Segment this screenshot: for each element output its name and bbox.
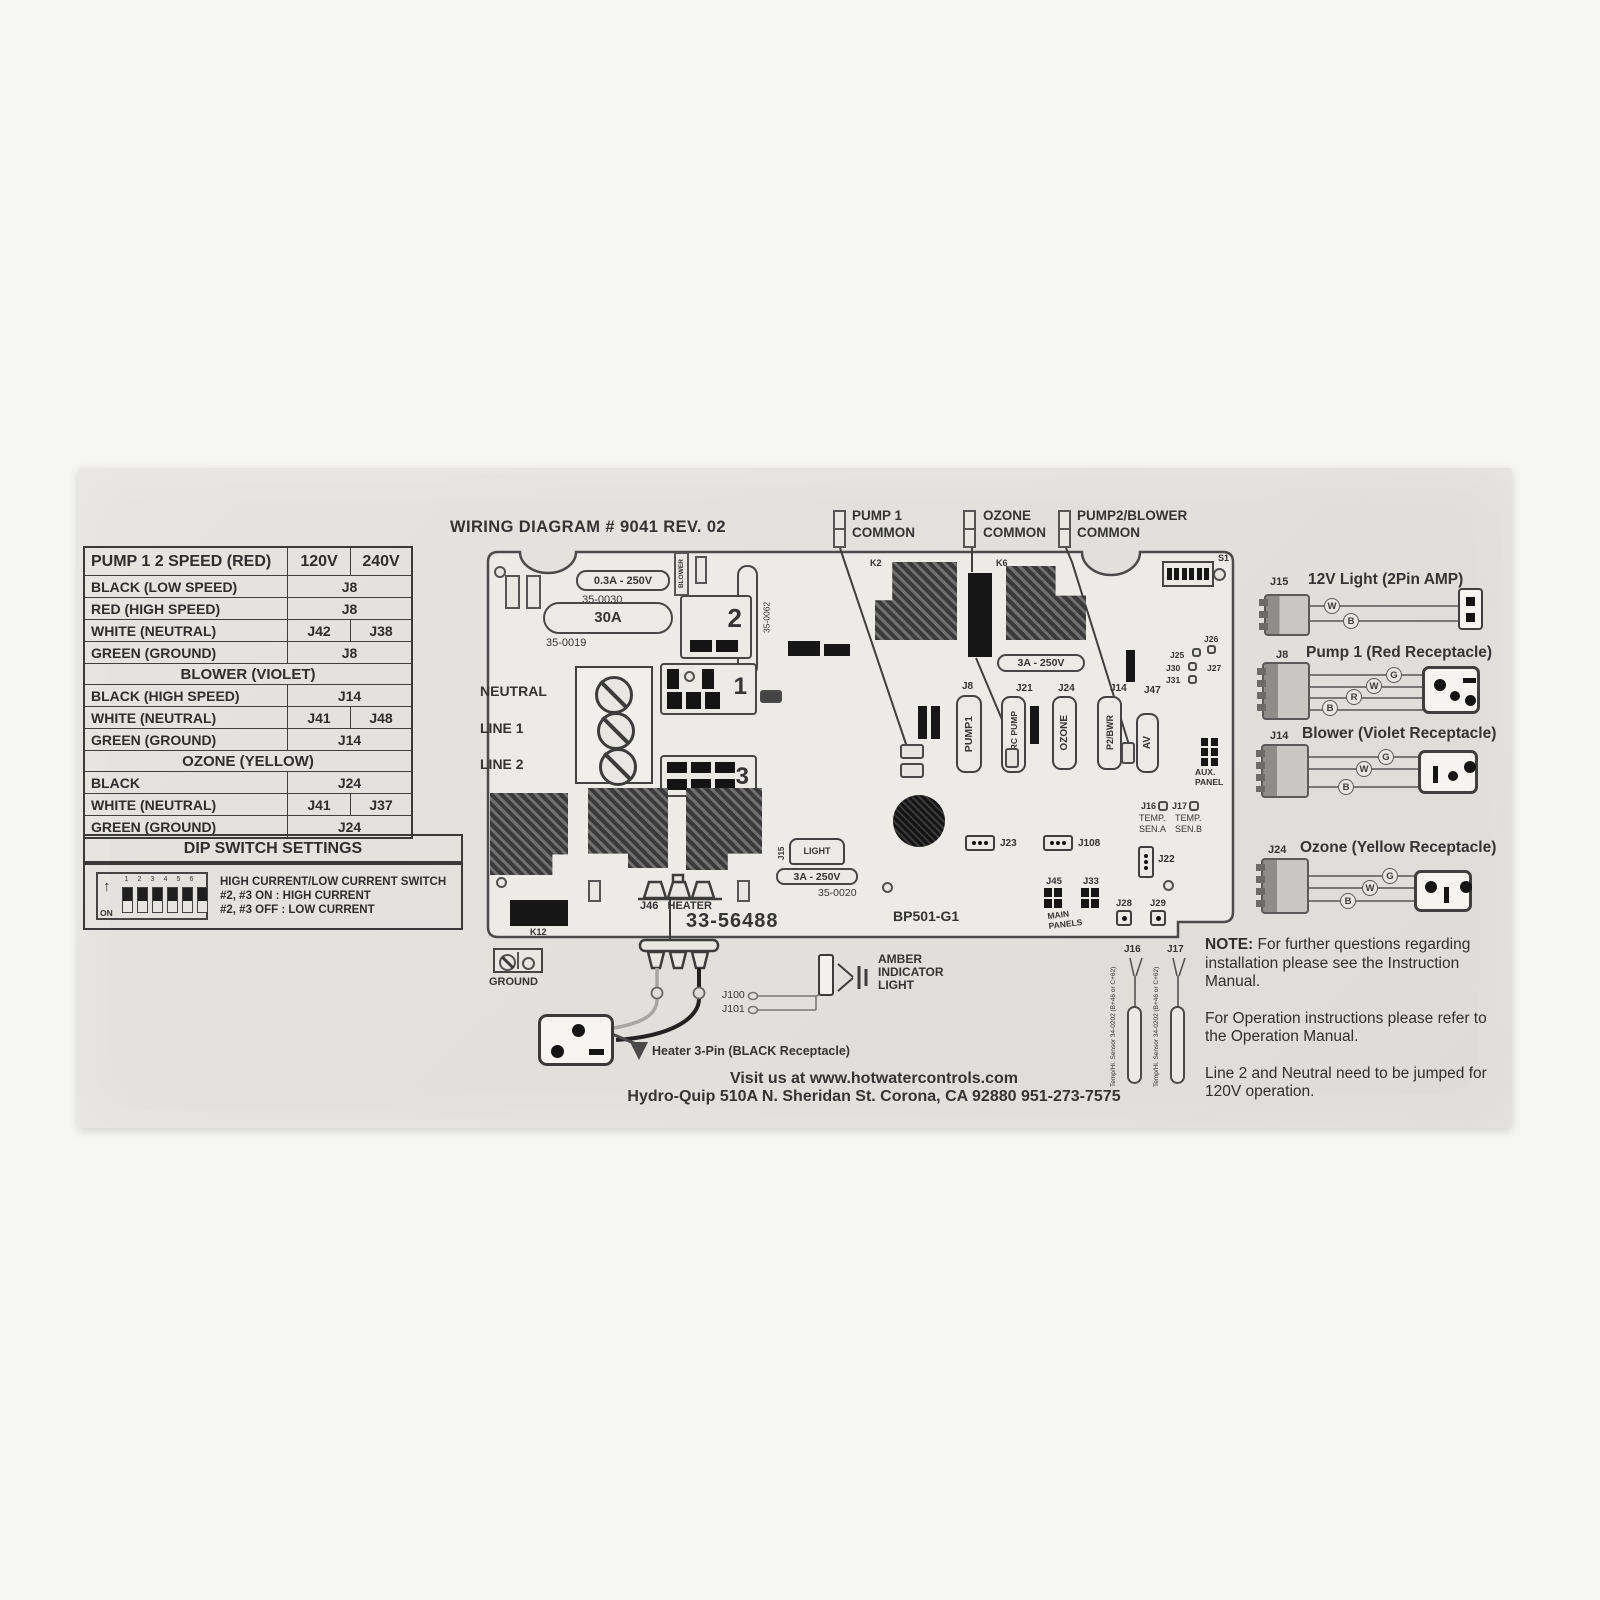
table-row: WHITE (NEUTRAL)J42J38 [84, 620, 412, 642]
j24-label: J24 [1058, 683, 1075, 694]
jumper-box [900, 744, 924, 759]
terminal-block [575, 666, 653, 784]
wire-label-w: W [1366, 678, 1382, 694]
j46-heater-label: J46 HEATER [640, 900, 712, 912]
j27-label: J27 [1207, 663, 1221, 673]
amber-indicator-lamp [818, 954, 834, 996]
dip-switch-toggle [137, 887, 148, 913]
note-paragraph: NOTE: For further questions regarding in… [1205, 936, 1507, 992]
j8-row-label: J8 [1276, 649, 1288, 661]
blower-fuse-label: BLOWER [674, 552, 689, 596]
pin-dot [1144, 854, 1148, 858]
table-row: WHITE (NEUTRAL)J41J48 [84, 707, 412, 729]
receptacle-pin-slot [1433, 766, 1438, 783]
component-chip [716, 640, 738, 652]
common-label-line: COMMON [983, 525, 1046, 542]
dip-note-line: HIGH CURRENT/LOW CURRENT SWITCH [220, 875, 446, 889]
connector-value: J8 [288, 642, 413, 664]
dip-switch-graphic: ↑ ON 1 2 3 4 5 6 [96, 872, 208, 920]
line2-label: LINE 2 [480, 756, 570, 772]
sen-a-label: SEN.A [1139, 824, 1166, 835]
wire-label: WHITE (NEUTRAL) [84, 707, 288, 729]
table-row: GREEN (GROUND)J8 [84, 642, 412, 664]
pin-dot [972, 841, 976, 845]
connector-value: J8 [288, 576, 413, 598]
table-row: RED (HIGH SPEED)J8 [84, 598, 412, 620]
receptacle-pin-hole [1434, 679, 1446, 691]
receptacle-pin-hole [572, 1024, 585, 1037]
line1-terminal-screw [597, 712, 635, 750]
temp-label: TEMP. [1175, 813, 1202, 824]
dip-switch-toggle [167, 887, 178, 913]
component-box [505, 575, 520, 609]
pin [1091, 888, 1099, 897]
pin-dot [978, 841, 982, 845]
wire-label: GREEN (GROUND) [84, 642, 288, 664]
j26-label: J26 [1204, 634, 1218, 644]
wire-label: RED (HIGH SPEED) [84, 598, 288, 620]
connector-teeth [1259, 599, 1268, 631]
k12-relay [510, 900, 568, 926]
j15-label: J15 [776, 840, 787, 866]
component-bar [824, 644, 850, 656]
aux-panel-label: AUX.PANEL [1195, 768, 1223, 787]
component-chip [667, 762, 687, 773]
dip-pin [1189, 568, 1194, 580]
jumper-box [1188, 675, 1197, 684]
j33-connector [1081, 888, 1101, 908]
connector-teeth [1256, 750, 1265, 792]
jumper-box [1189, 801, 1199, 811]
dip-switch-notes: HIGH CURRENT/LOW CURRENT SWITCH #2, #3 O… [220, 875, 446, 917]
wire-label: WHITE (NEUTRAL) [84, 620, 288, 642]
k12-label: K12 [530, 927, 547, 937]
dip-note-line: #2, #3 ON : HIGH CURRENT [220, 889, 446, 903]
wire-label: BLACK (HIGH SPEED) [84, 685, 288, 707]
k2-label: K2 [870, 558, 882, 568]
wire-label-b: B [1338, 779, 1354, 795]
aux-pin [1201, 748, 1208, 756]
av-connector: AV [1136, 713, 1159, 773]
wire-label: WHITE (NEUTRAL) [84, 794, 288, 816]
ozone-connector-text: OZONE [1059, 715, 1070, 751]
ground-label: GROUND [489, 976, 538, 988]
ozone-common-label: OZONECOMMON [983, 508, 1046, 541]
wire-label: BLACK (LOW SPEED) [84, 576, 288, 598]
arrow-up-icon: ↑ [103, 878, 111, 895]
pin-dot [1144, 860, 1148, 864]
fuse-10a-part: 35-0062 [760, 572, 773, 662]
pump1-common-pin-icon [833, 510, 846, 548]
dip-switch-toggle [152, 887, 163, 913]
pump1-receptacle [1422, 666, 1480, 714]
pump1-connector-text: PUMP1 [963, 716, 975, 752]
dip-number: 6 [187, 876, 196, 883]
light-2pin-plug [1458, 588, 1483, 630]
ground-screw [499, 954, 516, 971]
dip-pin [1182, 568, 1187, 580]
ozone-connector: OZONE [1052, 696, 1077, 770]
component-box [760, 690, 782, 703]
aux-pin [1211, 738, 1218, 746]
pin [1081, 899, 1089, 908]
dip-pin [1174, 568, 1179, 580]
connector-value: J8 [288, 598, 413, 620]
connector-value: J24 [288, 772, 413, 794]
component-chip [686, 692, 701, 709]
j24-row-label: J24 [1268, 844, 1286, 856]
j24-row-title: Ozone (Yellow Receptacle) [1300, 839, 1496, 857]
j8-row-title: Pump 1 (Red Receptacle) [1306, 644, 1492, 662]
pump1-common-label: PUMP 1COMMON [852, 508, 915, 541]
connector-value: J41 [288, 707, 351, 729]
wire-label: GREEN (GROUND) [84, 729, 288, 751]
component-box [588, 880, 601, 902]
connector-value: J14 [288, 729, 413, 751]
aux-label-line: PANEL [1195, 778, 1223, 788]
mounting-hole [1213, 568, 1226, 581]
pin [1044, 888, 1052, 897]
j29-connector [1150, 910, 1166, 926]
j108-label: J108 [1078, 838, 1100, 849]
receptacle-pin-slot [1444, 887, 1449, 903]
table-row: BLACKJ24 [84, 772, 412, 794]
connector-value: J37 [351, 794, 413, 816]
pin-dot [1056, 841, 1060, 845]
j25-label: J25 [1170, 650, 1184, 660]
neutral-label: NEUTRAL [480, 683, 570, 699]
temp-sen-a-label: TEMP.SEN.A [1139, 813, 1166, 834]
j23-label: J23 [1000, 838, 1017, 849]
pin [1091, 899, 1099, 908]
fuse-3a-lower: 3A - 250V [776, 868, 858, 885]
connector-value: J41 [288, 794, 351, 816]
jumper-box [1005, 748, 1019, 768]
component-chip [702, 669, 714, 689]
component-bar [931, 706, 940, 739]
receptacle-pin-hole [551, 1045, 564, 1058]
wire-label-g: G [1378, 749, 1394, 765]
dip-number: 5 [174, 876, 183, 883]
j30-label: J30 [1166, 663, 1180, 673]
dip-switch-numbers: 1 2 3 4 5 6 [122, 876, 196, 883]
screw-slot [599, 680, 629, 710]
aux-pin [1211, 748, 1218, 756]
pin-dot [1122, 916, 1127, 921]
line2-terminal-screw [599, 748, 637, 786]
dip-number: 2 [135, 876, 144, 883]
dip-switch-header: DIP SWITCH SETTINGS [83, 834, 463, 863]
j8-label: J8 [962, 681, 973, 692]
pin-dot [1156, 916, 1161, 921]
aux-panel-connector [1201, 738, 1219, 766]
j14-label: J14 [1110, 683, 1127, 694]
heater-receptacle [538, 1014, 614, 1066]
j108-connector [1043, 835, 1073, 851]
jumper-box [1158, 801, 1168, 811]
component-chip [691, 762, 711, 773]
jumper-box [900, 763, 924, 778]
screw-slot [601, 716, 631, 746]
fuse-3a-upper: 3A - 250V [997, 654, 1085, 672]
pin [1044, 899, 1052, 908]
connection-table: PUMP 1 2 SPEED (RED) 120V 240V BLACK (LO… [83, 546, 413, 839]
j17-sensor-label: J17 [1167, 944, 1184, 955]
common-label-line: OZONE [983, 508, 1046, 525]
blower-receptacle [1418, 750, 1478, 794]
fuse-0-3a: 0.3A - 250V [576, 570, 670, 591]
dip-switch-toggle [182, 887, 193, 913]
dip-number: 1 [122, 876, 131, 883]
j45-label: J45 [1046, 876, 1062, 887]
neutral-terminal-screw [595, 676, 633, 714]
wire-label-g: G [1386, 667, 1402, 683]
dip-on-label: ON [100, 908, 113, 918]
pump2-blower-common-label: PUMP2/BLOWERCOMMON [1077, 508, 1187, 541]
jumper-box [1121, 742, 1135, 764]
mounting-hole [496, 877, 507, 888]
round-component [893, 795, 945, 847]
pin [1081, 888, 1089, 897]
receptacle-pin-hole [1460, 881, 1472, 893]
board-id: BP501-G1 [893, 908, 959, 924]
receptacle-pin-hole [1464, 761, 1476, 773]
receptacle-pin-hole [1425, 881, 1437, 893]
connector-value: J14 [288, 685, 413, 707]
line1-label: LINE 1 [480, 720, 570, 736]
pin-dot [1050, 841, 1054, 845]
component-chip [667, 692, 682, 709]
dip-pin [1204, 568, 1209, 580]
p2bwr-connector: P2/BWR [1097, 696, 1122, 770]
common-label-line: COMMON [852, 525, 915, 542]
pump1-plug-icon [1262, 662, 1310, 720]
jumper-box [1192, 648, 1201, 657]
component-box [695, 556, 707, 584]
part-number: 33-56488 [686, 910, 779, 933]
relay-1-number: 1 [734, 673, 747, 701]
component-box [737, 880, 750, 902]
wire-label-b: B [1343, 613, 1359, 629]
ground-hole [522, 957, 535, 970]
component-bar [788, 641, 820, 656]
pump2-blower-common-pin-icon [1058, 510, 1071, 548]
pin [1054, 888, 1062, 897]
table-header-240v: 240V [351, 547, 413, 576]
k6-label: K6 [996, 558, 1008, 568]
common-label-line: COMMON [1077, 525, 1187, 542]
j15-row-title: 12V Light (2Pin AMP) [1308, 571, 1463, 589]
receptacle-pin-hole [1465, 695, 1476, 706]
wire-label-w: W [1362, 880, 1378, 896]
heater-receptacle-label: Heater 3-Pin (BLACK Receptacle) [652, 1044, 850, 1058]
component-bar [1126, 650, 1135, 682]
j17-label: J17 [1172, 801, 1187, 811]
note-paragraph: Line 2 and Neutral need to be jumped for… [1205, 1065, 1507, 1102]
ground-lug [493, 948, 543, 973]
relay-2: 2 [680, 595, 752, 659]
temp-label: TEMP. [1139, 813, 1166, 824]
wire-label: BLACK [84, 772, 288, 794]
blower-plug-icon [1261, 744, 1309, 798]
j28-connector [1116, 910, 1132, 926]
notes-block: NOTE: For further questions regarding in… [1205, 936, 1507, 1102]
dip-number: 3 [148, 876, 157, 883]
connector-value: J38 [351, 620, 413, 642]
j16-label: J16 [1141, 801, 1156, 811]
connector-value: J48 [351, 707, 413, 729]
plug-hole [1466, 613, 1475, 622]
j22-connector [1138, 846, 1154, 878]
screw-slot [501, 955, 514, 968]
pump1-connector: PUMP1 [956, 695, 982, 773]
table-row: BLACK (HIGH SPEED)J14 [84, 685, 412, 707]
j16-sensor-label: J16 [1124, 944, 1141, 955]
j14-row-title: Blower (Violet Receptacle) [1302, 725, 1496, 743]
j45-connector [1044, 888, 1064, 908]
s1-label: S1 [1218, 553, 1229, 563]
relay-2-number: 2 [728, 603, 742, 634]
wire-label-r: R [1346, 689, 1362, 705]
j31-label: J31 [1166, 675, 1180, 685]
wire-label-g: G [1382, 868, 1398, 884]
relay-3-number: 3 [736, 763, 749, 791]
component-chip [667, 669, 679, 689]
divider [517, 952, 519, 969]
j101-label: J101 [722, 1003, 745, 1015]
component-box [526, 575, 541, 609]
mounting-hole [882, 882, 893, 893]
s1-dip-switch [1162, 561, 1214, 587]
fuse-3a-lower-part: 35-0020 [818, 887, 857, 899]
p2bwr-connector-text: P2/BWR [1105, 715, 1115, 750]
receptacle-pin-hole [1448, 771, 1458, 781]
receptacle-pin-slot [589, 1049, 604, 1055]
connector-teeth [1257, 668, 1266, 713]
dip-switches [122, 887, 208, 913]
component-chip [690, 640, 712, 652]
j15-row-label: J15 [1270, 576, 1288, 588]
table-header-row: PUMP 1 2 SPEED (RED) 120V 240V [84, 547, 412, 576]
table-row: WHITE (NEUTRAL)J41J37 [84, 794, 412, 816]
pin-dot [1144, 866, 1148, 870]
sen-b-label: SEN.B [1175, 824, 1202, 835]
amber-label-line: LIGHT [878, 979, 944, 992]
j29-label: J29 [1150, 898, 1166, 909]
section-title: OZONE (YELLOW) [84, 751, 412, 772]
wire-label-w: W [1356, 761, 1372, 777]
ozone-receptacle [1414, 870, 1472, 912]
note-paragraph: For Operation instructions please refer … [1205, 1010, 1507, 1047]
pin-dot [984, 841, 988, 845]
jumper-box [1188, 662, 1197, 671]
dip-number: 4 [161, 876, 170, 883]
temp-sen-b-label: TEMP.SEN.B [1175, 813, 1202, 834]
table-section-row: BLOWER (VIOLET) [84, 664, 412, 685]
component-chip [667, 779, 687, 790]
fuse-30a-part: 35-0019 [546, 637, 586, 649]
table-header-name: PUMP 1 2 SPEED (RED) [84, 547, 288, 576]
fuse-30a: 30A [543, 602, 673, 634]
screw-slot [603, 752, 633, 782]
receptacle-pin-hole [1450, 691, 1460, 701]
aux-pin [1211, 758, 1218, 766]
table-section-row: OZONE (YELLOW) [84, 751, 412, 772]
component-bar [1030, 706, 1039, 744]
dip-pin [1197, 568, 1202, 580]
common-label-line: PUMP2/BLOWER [1077, 508, 1187, 525]
j21-label: J21 [1016, 683, 1033, 694]
footer-address: Hydro-Quip 510A N. Sheridan St. Corona, … [524, 1088, 1224, 1106]
aux-pin [1201, 758, 1208, 766]
diagram-title: WIRING DIAGRAM # 9041 REV. 02 [450, 518, 726, 537]
table-row: BLACK (LOW SPEED)J8 [84, 576, 412, 598]
component-bar [918, 706, 927, 739]
wire-label-b: B [1322, 700, 1338, 716]
note-label: NOTE: [1205, 936, 1253, 953]
relay-1: 1 [660, 663, 757, 715]
relay-hole [684, 671, 695, 682]
plug-hole [1466, 597, 1475, 606]
wire-label-b: B [1340, 893, 1356, 909]
pin [1054, 899, 1062, 908]
j33-label: J33 [1083, 876, 1099, 887]
j23-connector [965, 835, 995, 851]
j100-label: J100 [722, 989, 745, 1001]
amber-indicator-label: AMBER INDICATOR LIGHT [878, 953, 944, 992]
table-row: GREEN (GROUND)J14 [84, 729, 412, 751]
ozone-common-pin-icon [963, 510, 976, 548]
receptacle-pin-slot [1463, 678, 1476, 683]
dip-note-line: #2, #3 OFF : LOW CURRENT [220, 903, 446, 917]
table-header-120v: 120V [288, 547, 351, 576]
mounting-hole [1163, 880, 1174, 891]
capacitor-bar [968, 573, 992, 657]
ozone-plug-icon [1261, 858, 1309, 914]
footer-url: Visit us at www.hotwatercontrols.com [574, 1070, 1174, 1088]
dip-switch-toggle [122, 887, 133, 913]
dip-pin [1167, 568, 1172, 580]
connector-teeth [1256, 864, 1265, 908]
section-title: BLOWER (VIOLET) [84, 664, 412, 685]
av-connector-text: AV [1142, 736, 1153, 749]
connector-value: J42 [288, 620, 351, 642]
j28-label: J28 [1116, 898, 1132, 909]
wire-label-w: W [1324, 598, 1340, 614]
dip-switch-toggle [197, 887, 208, 913]
j22-label: J22 [1158, 854, 1175, 865]
j15-plug-icon [1264, 594, 1310, 636]
j15-light-connector: LIGHT [789, 838, 845, 865]
component-chip [715, 762, 735, 773]
jumper-box [1207, 645, 1216, 654]
aux-pin [1201, 738, 1208, 746]
j14-row-label: J14 [1270, 730, 1288, 742]
common-label-line: PUMP 1 [852, 508, 915, 525]
component-chip [705, 692, 720, 709]
j47-label: J47 [1144, 685, 1161, 696]
pin-dot [1062, 841, 1066, 845]
